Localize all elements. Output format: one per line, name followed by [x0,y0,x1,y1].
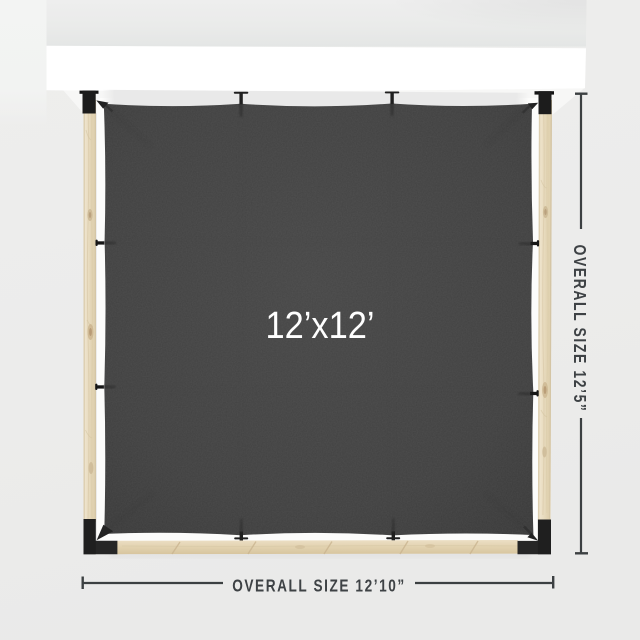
svg-text:OVERALL SIZE 12’5”: OVERALL SIZE 12’5” [570,245,590,413]
svg-text:OVERALL SIZE 12’10”: OVERALL SIZE 12’10” [232,575,406,595]
svg-text:12’x12’: 12’x12’ [266,305,375,347]
